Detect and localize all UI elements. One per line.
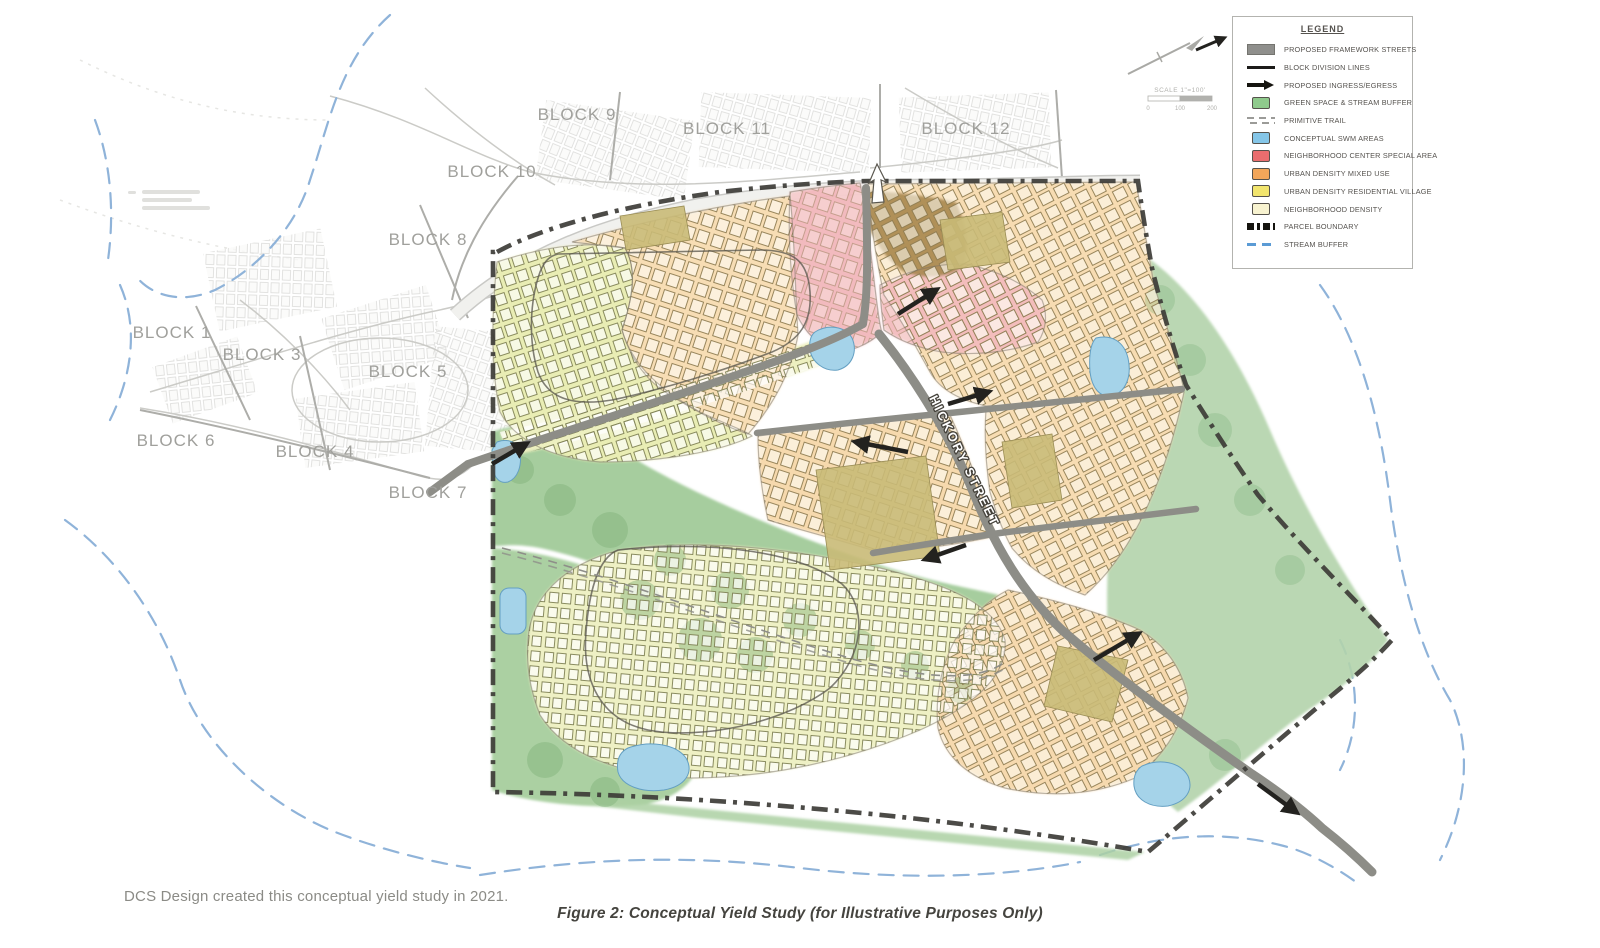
green-space-swatch bbox=[1252, 97, 1270, 109]
legend-title: LEGEND bbox=[1233, 24, 1412, 34]
residential-village-swatch bbox=[1252, 185, 1270, 197]
legend-item-block-division: BLOCK DIVISION LINES bbox=[1247, 59, 1404, 77]
stream-buffer-swatch bbox=[1247, 243, 1275, 246]
block-label: BLOCK 3 bbox=[223, 345, 302, 364]
primitive-trail-swatch bbox=[1247, 117, 1275, 124]
legend-item-swm-areas: CONCEPTUAL SWM AREAS bbox=[1247, 129, 1404, 147]
scale-label: SCALE 1"=100' bbox=[1154, 87, 1205, 94]
block-label: BLOCK 12 bbox=[921, 119, 1010, 138]
scale-bar: SCALE 1"=100' 0 100 200 bbox=[1146, 87, 1217, 112]
legend-item-neighborhood-density: NEIGHBORHOOD DENSITY bbox=[1247, 200, 1404, 218]
scale-tick: 100 bbox=[1175, 106, 1186, 112]
legend-item-neighborhood-center: NEIGHBORHOOD CENTER SPECIAL AREA bbox=[1247, 147, 1404, 165]
figure-caption: Figure 2: Conceptual Yield Study (for Il… bbox=[0, 905, 1600, 923]
legend-item-parcel-boundary: PARCEL BOUNDARY bbox=[1247, 218, 1404, 236]
block-label: BLOCK 6 bbox=[137, 431, 216, 450]
conceptual-yield-study-figure: BLOCK 1 BLOCK 3 BLOCK 5 BLOCK 6 BLOCK 4 … bbox=[0, 0, 1600, 948]
legend-item-primitive-trail: PRIMITIVE TRAIL bbox=[1247, 112, 1404, 130]
legend: LEGEND PROPOSED FRAMEWORK STREETS BLOCK … bbox=[1232, 16, 1413, 269]
scale-tick: 0 bbox=[1146, 106, 1150, 112]
mixed-use-swatch bbox=[1252, 168, 1270, 180]
block-label: BLOCK 7 bbox=[389, 483, 468, 502]
block-label: BLOCK 8 bbox=[389, 230, 468, 249]
block-label: BLOCK 5 bbox=[369, 362, 448, 381]
legend-item-framework-streets: PROPOSED FRAMEWORK STREETS bbox=[1247, 41, 1404, 59]
legend-item-mixed-use: URBAN DENSITY MIXED USE bbox=[1247, 165, 1404, 183]
block-label: BLOCK 4 bbox=[276, 442, 355, 461]
legend-item-ingress-egress: PROPOSED INGRESS/EGRESS bbox=[1247, 76, 1404, 94]
neighborhood-center-swatch bbox=[1252, 150, 1270, 162]
block-label: BLOCK 9 bbox=[538, 105, 617, 124]
parcel-boundary-swatch bbox=[1247, 223, 1275, 230]
scale-tick: 200 bbox=[1207, 106, 1218, 112]
legend-item-stream-buffer: STREAM BUFFER bbox=[1247, 236, 1404, 254]
legend-item-residential-village: URBAN DENSITY RESIDENTIAL VILLAGE bbox=[1247, 183, 1404, 201]
legend-item-green-space: GREEN SPACE & STREAM BUFFER bbox=[1247, 94, 1404, 112]
block-label: BLOCK 10 bbox=[447, 162, 536, 181]
credit-note: DCS Design created this conceptual yield… bbox=[124, 888, 509, 905]
framework-streets-swatch bbox=[1247, 44, 1275, 55]
block-label: BLOCK 1 bbox=[133, 323, 212, 342]
neighborhood-density-swatch bbox=[1252, 203, 1270, 215]
block-division-line-swatch bbox=[1247, 66, 1275, 68]
ingress-egress-arrow-swatch bbox=[1247, 80, 1275, 90]
block-label: BLOCK 11 bbox=[683, 119, 771, 138]
swm-areas-swatch bbox=[1252, 132, 1270, 144]
legend-rows: PROPOSED FRAMEWORK STREETS BLOCK DIVISIO… bbox=[1233, 39, 1412, 253]
faint-annotation bbox=[128, 190, 210, 210]
north-arrow bbox=[1128, 36, 1204, 74]
